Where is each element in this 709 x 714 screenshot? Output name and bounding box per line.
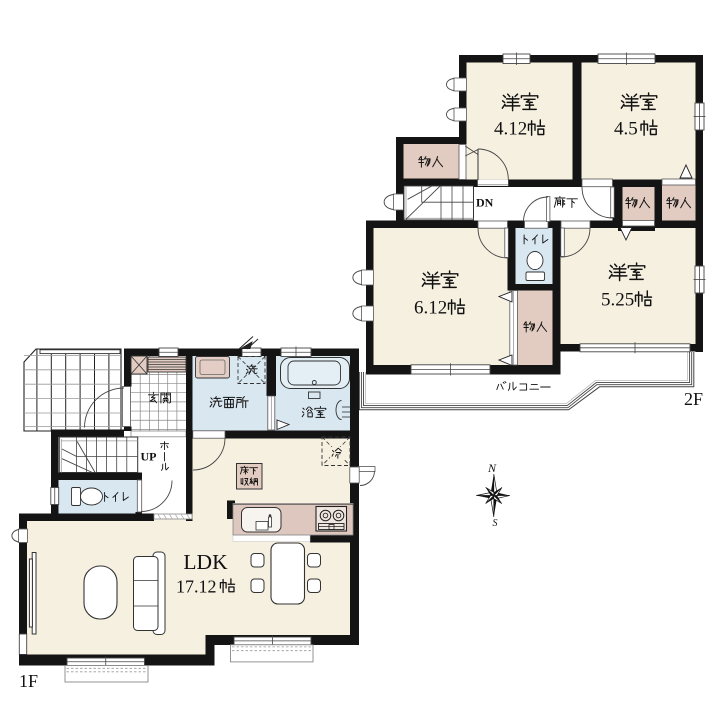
svg-text:LDK: LDK: [183, 550, 228, 574]
svg-text:6.12: 6.12: [414, 298, 447, 319]
svg-text:UP: UP: [141, 450, 157, 464]
svg-text:S: S: [493, 518, 498, 529]
svg-text:1F: 1F: [19, 671, 38, 691]
svg-text:4.5: 4.5: [614, 119, 638, 140]
svg-text:5.25: 5.25: [601, 290, 634, 311]
svg-text:2F: 2F: [684, 389, 703, 409]
svg-text:DN: DN: [476, 196, 494, 210]
svg-text:N: N: [487, 461, 497, 475]
svg-text:17.12: 17.12: [176, 577, 217, 597]
svg-text:4.12: 4.12: [494, 119, 527, 140]
